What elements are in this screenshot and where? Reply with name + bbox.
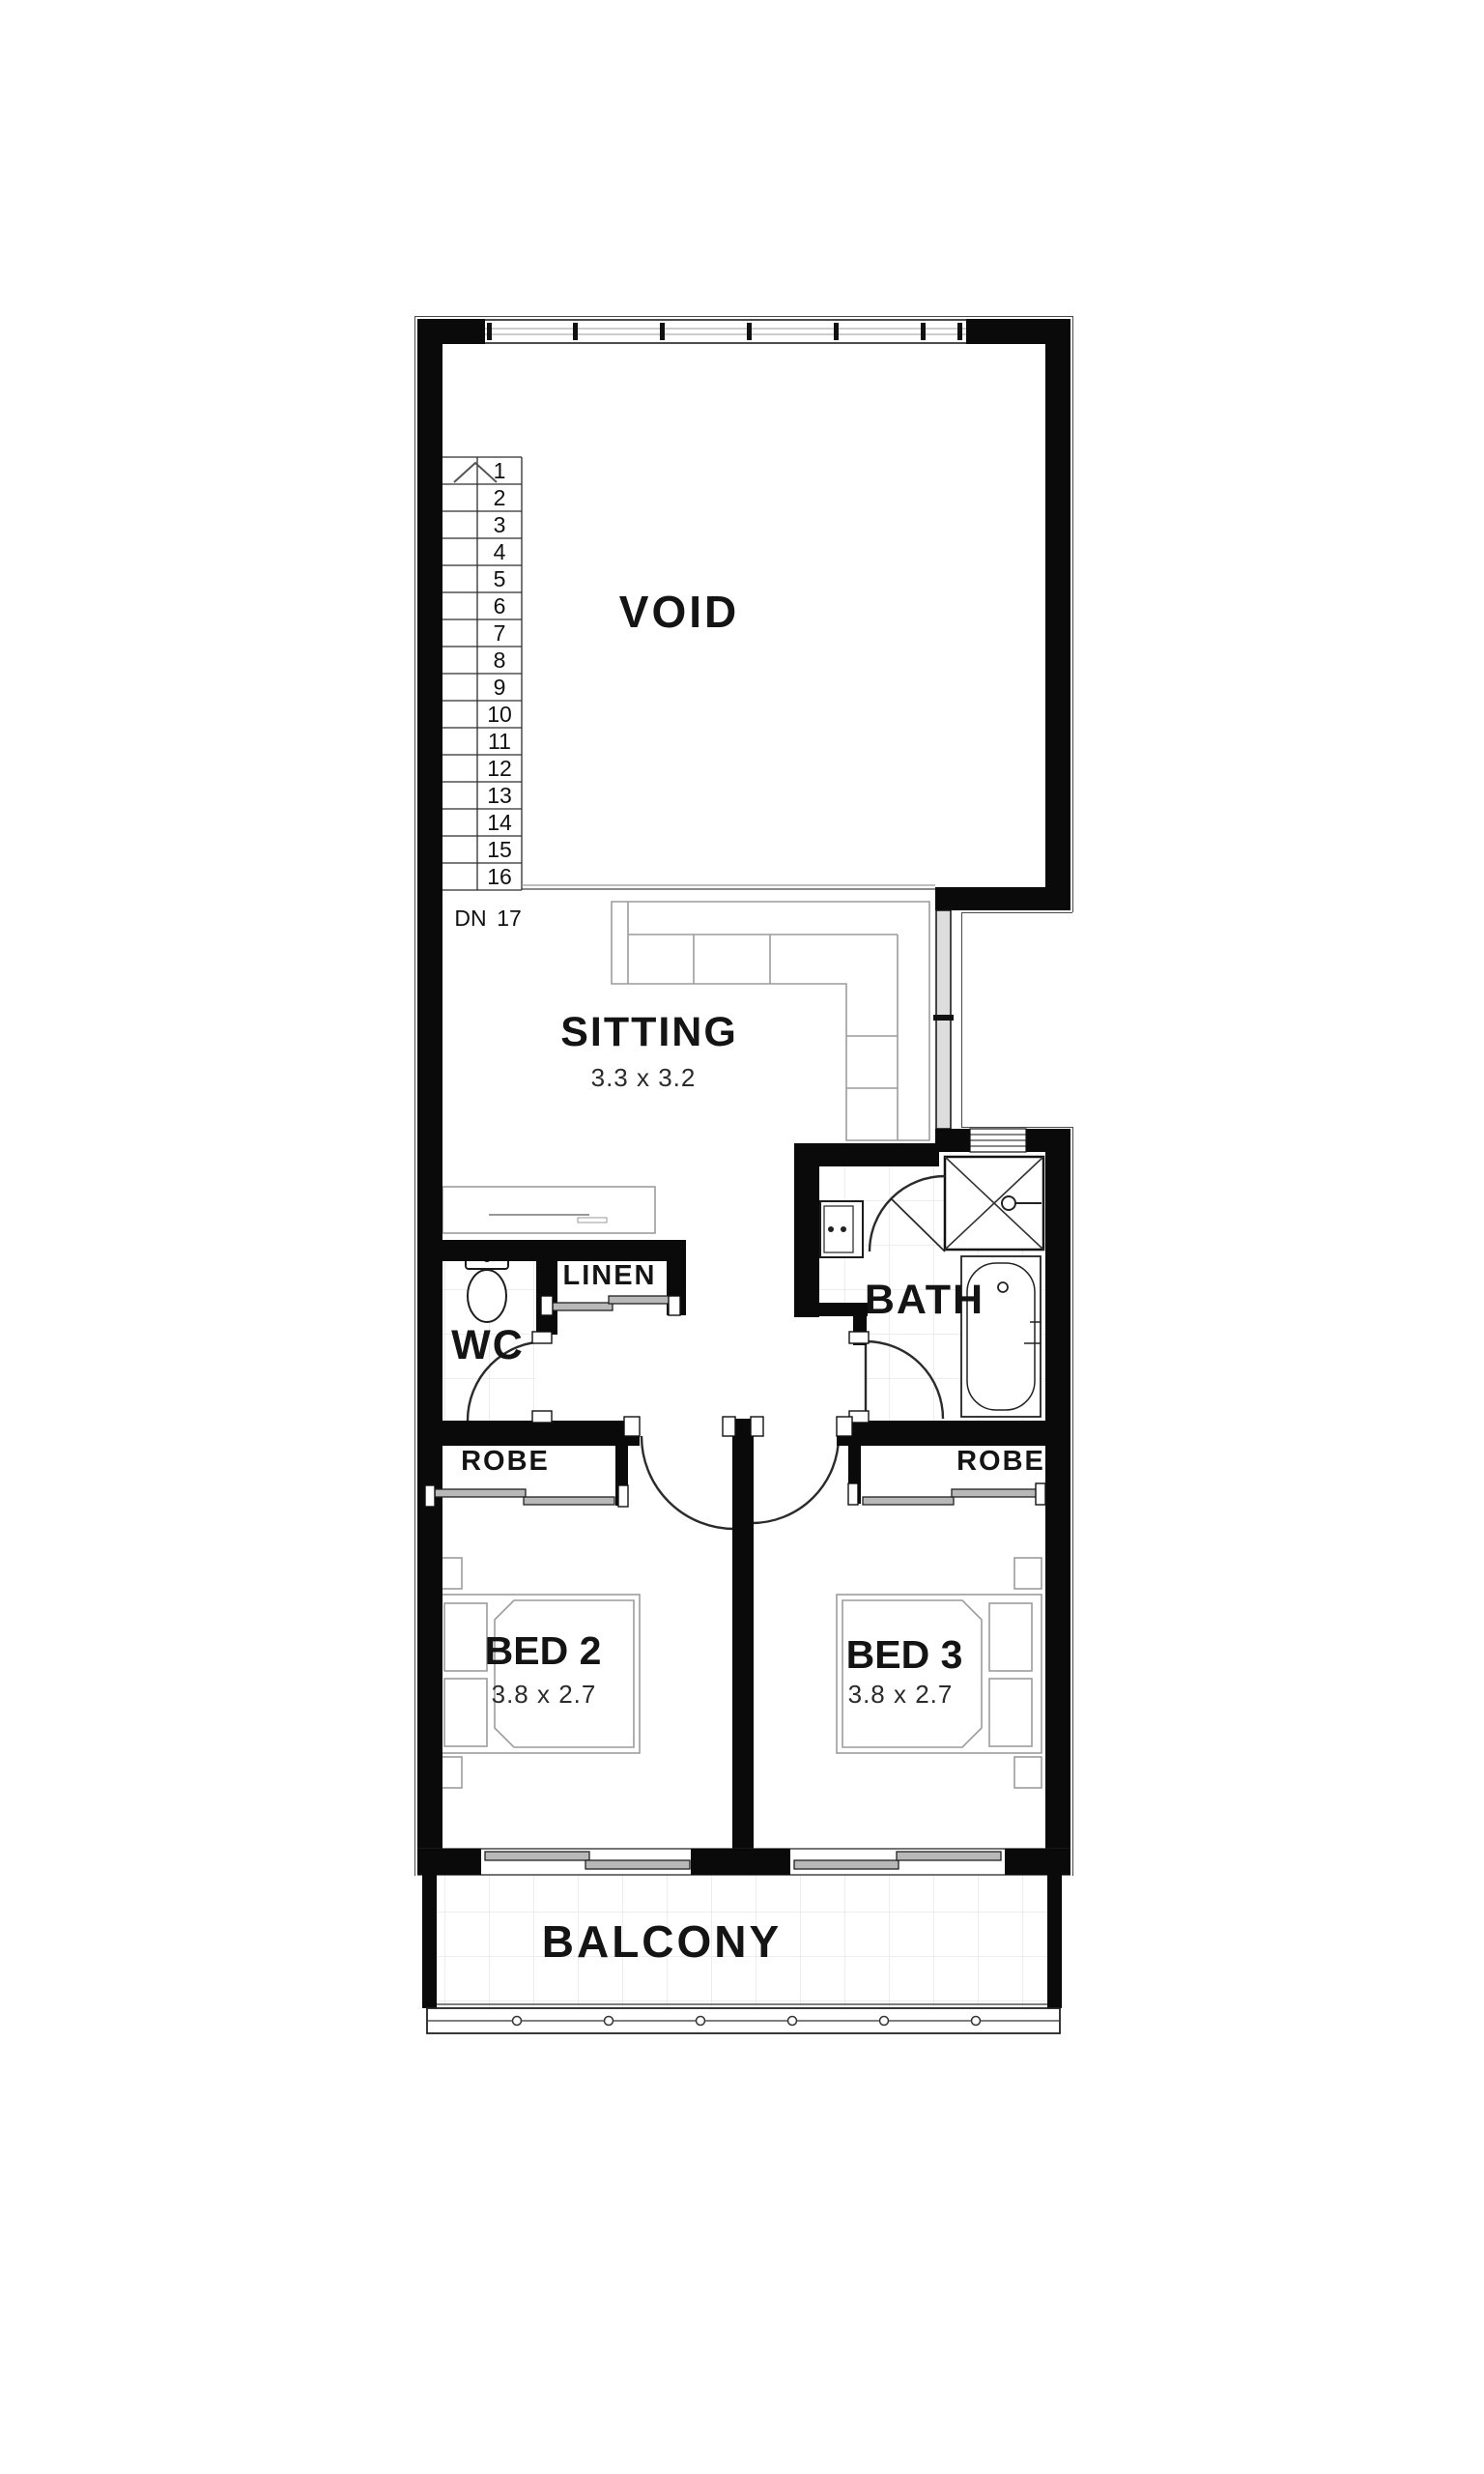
bed2-icon [435,1558,640,1788]
room-label-wc: WC [451,1322,525,1368]
robe3-slider-door [952,1489,1042,1497]
wall-robe3-top [837,1421,1070,1446]
room-label-void: VOID [619,587,739,637]
room-dims-bed3: 3.8 x 2.7 [848,1680,954,1709]
stair-tread-number: 2 [494,485,506,510]
stair-tread-number: 5 [494,566,506,591]
stair-down-label: DN [454,906,486,931]
bed3-balcony-slider [897,1852,1001,1860]
stair-tread-number: 1 [494,458,506,483]
wall-bath-left [794,1143,819,1317]
desk-icon [442,1187,655,1233]
room-label-bath: BATH [865,1277,985,1323]
stair-tread-number: 16 [487,864,512,889]
wall-bottom-center-block [691,1849,790,1875]
room-dims-bed2: 3.8 x 2.7 [492,1680,597,1709]
bed2-door-arc [642,1436,734,1529]
stair-tread-number: 6 [494,593,506,618]
robe2-slider-door [435,1489,526,1497]
top-window [485,319,966,344]
linen-slider-door [609,1296,674,1304]
stair-tread-number: 13 [487,783,512,808]
void-edge [522,885,935,889]
wall-right-upper [1045,319,1070,910]
wall-left [417,319,442,1875]
wall-bottom-right-block [1005,1849,1070,1875]
stair-tread-number: 11 [488,729,511,754]
robe2-slider-door [524,1497,614,1505]
wall-top-right-block [966,319,1070,344]
stair-direction-arrow-icon [454,463,497,482]
linen-slider-door [547,1303,613,1310]
stair-tread-number: 4 [494,539,506,564]
wall-void-bottom [935,887,1070,910]
wall-bottom-left-block [417,1849,481,1875]
balcony-railing [427,2004,1060,2033]
room-label-bed3: BED 3 [846,1632,963,1677]
room-label-balcony: BALCONY [542,1916,782,1967]
wall-right-lower [1045,1129,1070,1875]
stair-tread-numbers: 1 2 3 4 5 6 7 8 9 10 11 12 13 14 15 16 D… [454,458,521,931]
wall-robe2-top [417,1421,640,1446]
stair-tread-number: 14 [487,810,512,835]
bed2-balcony-slider [485,1852,589,1860]
room-label-linen: LINEN [563,1260,657,1291]
bed3-door-arc [752,1436,839,1523]
room-label-robe-bed2: ROBE [461,1446,550,1477]
wall-top-left-block [417,319,487,344]
room-label-bed2: BED 2 [485,1628,602,1673]
sitting-window [933,910,954,1129]
floor-plan: VOID SITTING 3.3 x 3.2 WC LINEN BATH ROB… [0,0,1484,2474]
floor-plan-page: VOID SITTING 3.3 x 3.2 WC LINEN BATH ROB… [0,0,1484,2474]
bed2-balcony-slider [585,1860,690,1869]
stair-tread-number: 8 [494,647,506,673]
wall-wc-linen-top [417,1240,686,1261]
wall-bedroom-divider [732,1419,754,1849]
bath-window [970,1129,1026,1152]
room-label-robe-bed3: ROBE [956,1446,1045,1477]
stair-last-tread-number: 17 [497,906,522,931]
wall-balcony-left [422,1875,437,2008]
stair-tread-number: 10 [487,702,512,727]
robe3-slider-door [863,1497,954,1505]
room-dims-sitting: 3.3 x 3.2 [591,1063,697,1092]
stair-tread-number: 12 [487,756,512,781]
vanity-icon [820,1201,863,1257]
bed3-balcony-slider [794,1860,899,1869]
stair-tread-number: 15 [487,837,512,862]
stair-tread-number: 3 [494,512,506,537]
stair-tread-number: 9 [494,675,506,700]
stair-tread-number: 7 [494,620,506,646]
room-label-sitting: SITTING [560,1009,738,1055]
wall-balcony-right [1047,1875,1062,2008]
